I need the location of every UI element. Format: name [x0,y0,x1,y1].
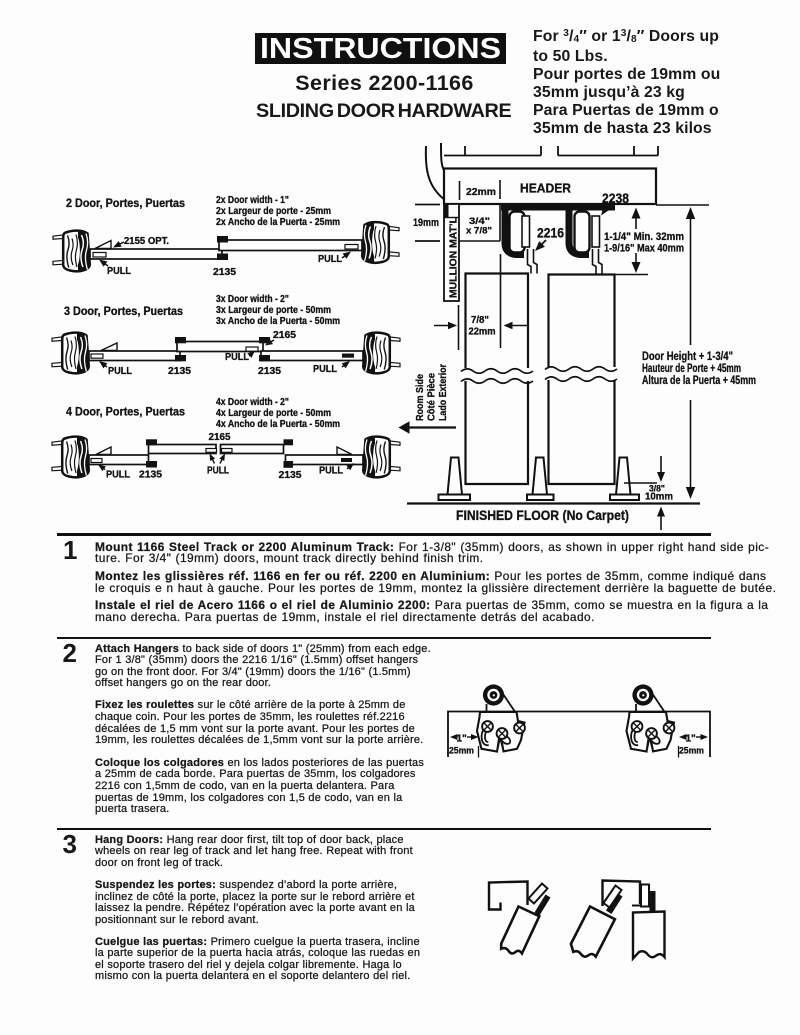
svg-text:19mm: 19mm [413,217,439,229]
svg-text:2238: 2238 [602,191,629,206]
svg-text:PULL: PULL [108,365,133,377]
svg-text:Door Height + 1-3/4": Door Height + 1-3/4" [642,351,733,363]
svg-text:FINISHED FLOOR (No Carpet): FINISHED FLOOR (No Carpet) [456,508,629,523]
svg-text:PULL: PULL [107,265,132,277]
svg-text:1-1/4" Min. 32mm: 1-1/4" Min. 32mm [604,231,684,243]
svg-text:25mm: 25mm [449,746,474,756]
svg-text:PULL: PULL [207,465,229,477]
svg-text:2135: 2135 [279,469,302,481]
svg-text:4x Largeur de porte - 50mm: 4x Largeur de porte - 50mm [216,408,331,419]
svg-text:1": 1" [457,734,468,745]
svg-text:4x Door width - 2": 4x Door width - 2" [216,397,289,408]
svg-text:1": 1" [686,734,697,745]
svg-text:Lado Exterior: Lado Exterior [438,364,449,421]
svg-text:2135: 2135 [139,469,162,481]
svg-text:2165: 2165 [273,329,296,341]
svg-text:4x Ancho de la Puerta - 50mm: 4x Ancho de la Puerta - 50mm [216,419,340,430]
svg-text:3x Largeur de porte - 50mm: 3x Largeur de porte - 50mm [216,305,331,316]
svg-text:3 Door, Portes, Puertas: 3 Door, Portes, Puertas [64,306,183,318]
svg-text:PULL: PULL [319,465,344,477]
svg-text:3x Door width - 2": 3x Door width - 2" [216,294,289,305]
svg-text:1-9/16" Max 40mm: 1-9/16" Max 40mm [604,243,684,255]
svg-text:2165: 2165 [209,431,231,443]
svg-text:2 Door, Portes, Puertas: 2 Door, Portes, Puertas [66,198,185,210]
svg-text:MULLION MAT’L: MULLION MAT’L [448,216,460,298]
svg-text:Côté Pièce: Côté Pièce [427,373,438,421]
svg-text:x 7/8": x 7/8" [466,226,492,237]
svg-text:PULL: PULL [225,351,250,363]
svg-text:PULL: PULL [106,469,131,481]
svg-text:2x Ancho de la Puerta - 25mm: 2x Ancho de la Puerta - 25mm [216,217,340,228]
svg-text:4 Door, Portes, Puertas: 4 Door, Portes, Puertas [66,407,185,419]
svg-text:INSTRUCTIONS: INSTRUCTIONS [260,33,501,65]
svg-text:22mm: 22mm [469,327,496,338]
svg-text:2155 OPT.: 2155 OPT. [124,235,169,247]
svg-text:PULL: PULL [313,363,338,375]
svg-text:Room Side: Room Side [415,374,426,421]
svg-text:7/8": 7/8" [471,315,489,326]
svg-text:PULL: PULL [318,253,343,265]
svg-text:2x Door width - 1": 2x Door width - 1" [216,195,289,206]
svg-text:Hauteur de Porte + 45mm: Hauteur de Porte + 45mm [642,363,741,375]
svg-text:2135: 2135 [213,266,236,278]
svg-text:Altura de la Puerta + 45mm: Altura de la Puerta + 45mm [642,375,756,387]
svg-text:22mm: 22mm [466,187,496,198]
svg-text:HEADER: HEADER [520,182,571,196]
svg-text:2135: 2135 [258,365,281,377]
svg-text:2216: 2216 [537,226,564,241]
svg-text:25mm: 25mm [679,746,704,756]
svg-text:10mm: 10mm [645,492,673,503]
svg-text:3x Ancho de la Puerta - 50mm: 3x Ancho de la Puerta - 50mm [216,316,340,327]
svg-text:2x Largeur de porte - 25mm: 2x Largeur de porte - 25mm [216,206,331,217]
svg-text:2135: 2135 [168,365,191,377]
